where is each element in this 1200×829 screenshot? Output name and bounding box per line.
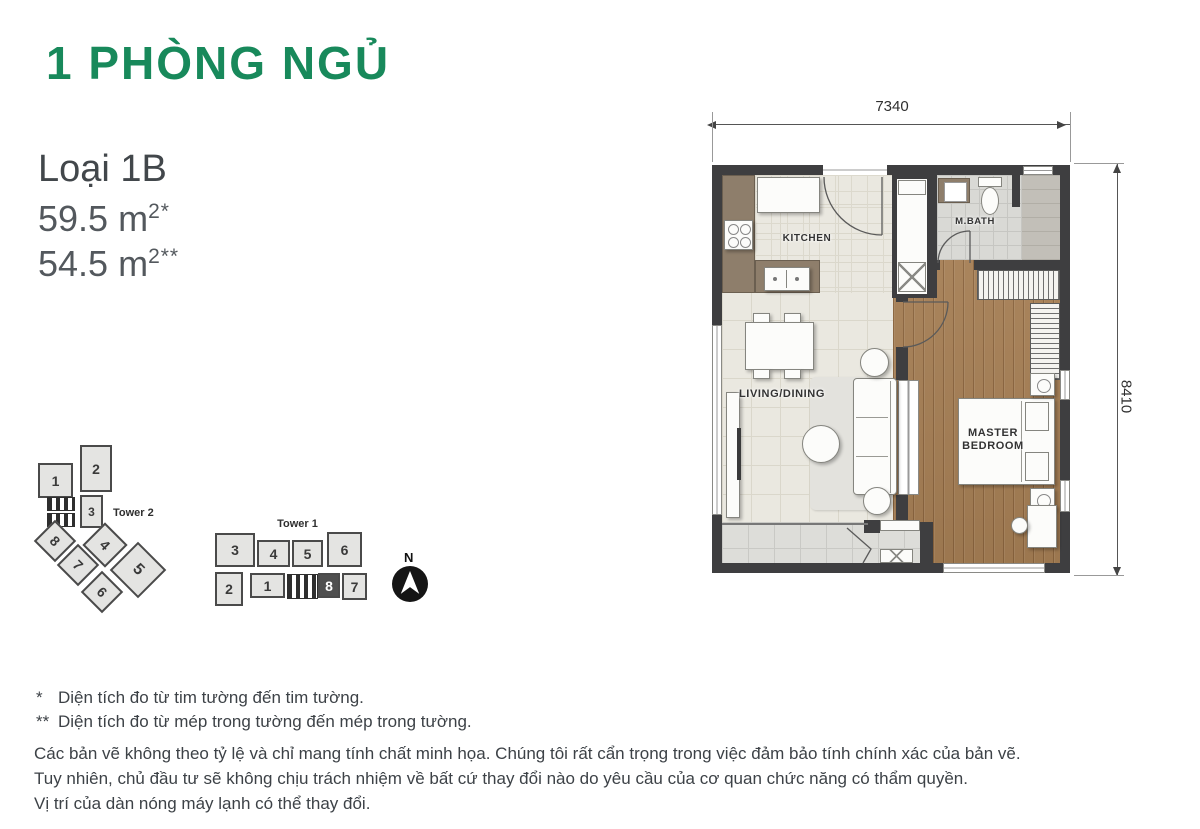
floor-plan: KITCHEN M.BATH LIVING/DINING MASTER BEDR… [712,165,1070,573]
tower1-label: Tower 1 [265,518,330,530]
footnote-1-marker: * [36,688,58,708]
dim-extension-top [1074,163,1124,164]
tower1-unit-6: 6 [327,532,362,567]
unit-type-label: Loại 1B [38,148,167,191]
disclaimer-line-1: Các bản vẽ không theo tỷ lệ và chỉ mang … [34,744,1021,764]
room-label-master-line2: BEDROOM [961,440,1025,453]
area-net-sup: 2** [148,245,179,268]
room-label-master: MASTER BEDROOM [961,427,1025,453]
tower2-core [47,497,75,511]
dimension-right: 8410 [1118,367,1135,427]
dimension-top: 7340 [858,98,926,115]
north-arrow-icon [399,571,421,597]
area-gross-sup: 2* [148,200,170,223]
tower1-unit-7: 7 [342,573,367,600]
footnote-2-text: Diện tích đo từ mép trong tường đến mép … [58,712,472,732]
tower2-keyplan: 1 2 3 Tower 2 8 4 7 5 6 [30,435,200,620]
tower2-label: Tower 2 [113,507,154,519]
disclaimer-line-3: Vị trí của dàn nóng máy lạnh có thể thay… [34,794,370,814]
page-title: 1 PHÒNG NGỦ [46,36,390,90]
dim-extension-left [712,112,713,162]
north-compass: N [388,550,432,608]
footnote-1-text: Diện tích đo từ tim tường đến tim tường. [58,688,364,708]
area-gross: 59.5 m2* [38,198,170,240]
footnote-2: ** Diện tích đo từ mép trong tường đến m… [36,712,472,732]
room-label-living: LIVING/DINING [732,388,832,400]
dimension-top-line [712,124,1071,125]
area-gross-value: 59.5 m [38,198,148,239]
tower2-unit-2: 2 [80,445,112,492]
area-net: 54.5 m2** [38,243,179,285]
room-label-master-line1: MASTER [961,427,1025,440]
north-label: N [404,550,413,565]
room-label-kitchen: KITCHEN [772,233,842,244]
tower1-keyplan: Tower 1 3 4 5 6 2 1 8 7 [210,518,385,610]
tower1-unit-1: 1 [250,573,285,598]
tower1-unit-3: 3 [215,533,255,567]
room-label-mbath: M.BATH [945,216,1005,227]
tower1-unit-2: 2 [215,572,243,606]
tower1-unit-4: 4 [257,540,290,567]
door-arcs [712,165,1070,573]
dim-extension-right [1070,112,1071,162]
footnote-2-marker: ** [36,712,58,732]
tower1-unit-8-highlighted: 8 [318,573,340,598]
dim-arrow-right-icon [1057,121,1066,129]
page: { "header": { "title": "1 PHÒNG NGỦ", "u… [0,0,1200,829]
tower2-unit-1: 1 [38,463,73,498]
tower1-unit-5: 5 [292,540,323,567]
dim-extension-bottom [1074,575,1124,576]
compass-circle-icon [392,566,428,602]
tower2-unit-3: 3 [80,495,103,528]
disclaimer-line-2: Tuy nhiên, chủ đầu tư sẽ không chịu trác… [34,769,968,789]
tower1-core [287,574,318,599]
footnote-1: * Diện tích đo từ tim tường đến tim tườn… [36,688,364,708]
area-net-value: 54.5 m [38,243,148,284]
dim-arrow-up-icon [1113,164,1121,173]
